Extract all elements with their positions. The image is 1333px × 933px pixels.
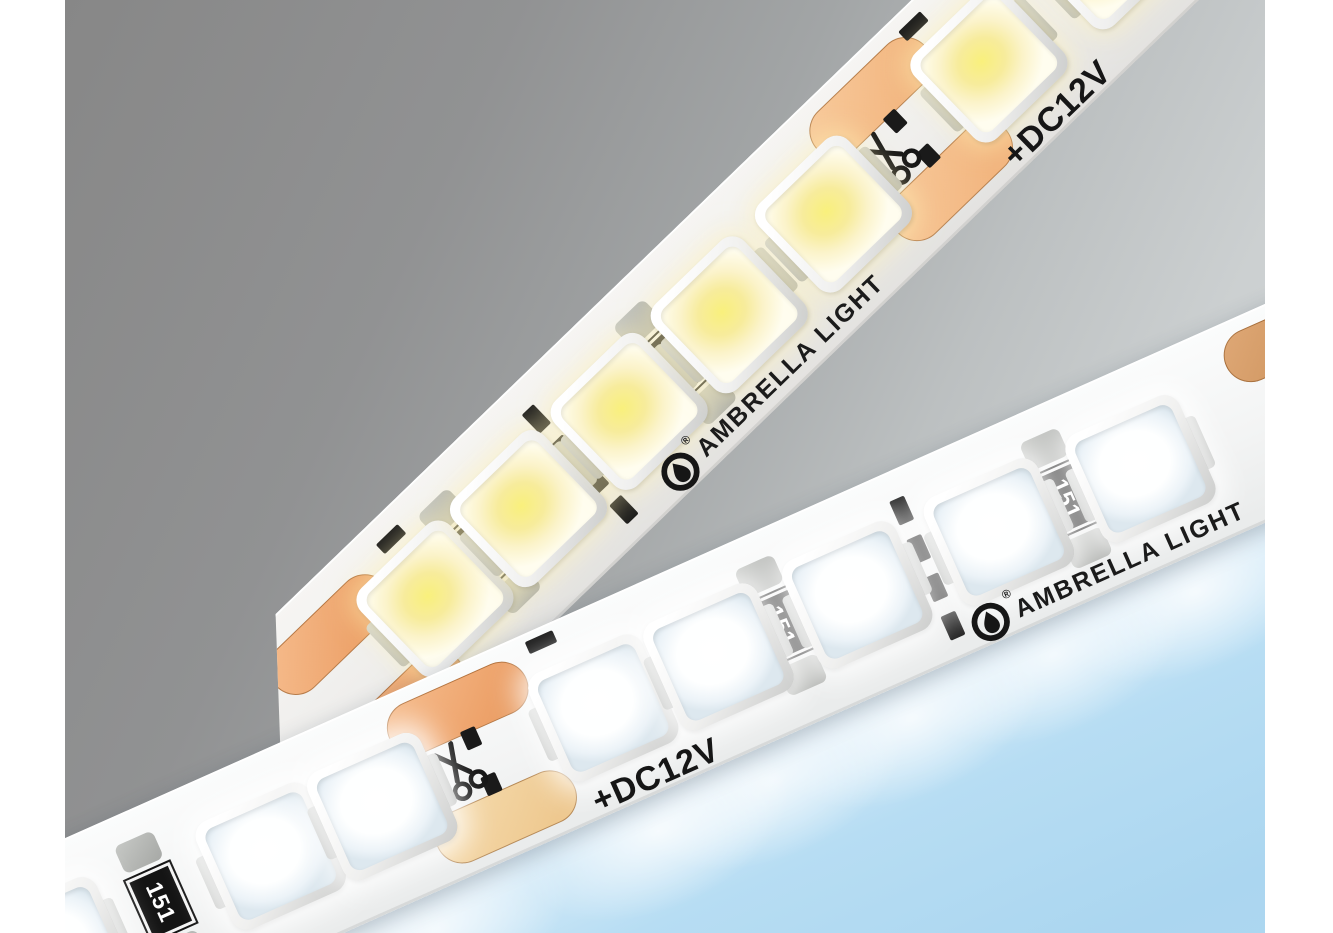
resistor-body: 151 xyxy=(125,862,196,933)
led-emitter xyxy=(1033,0,1179,24)
minus-polarity-mark xyxy=(898,11,929,41)
solder-pad xyxy=(1215,280,1265,390)
photo-background: 151 151 ® AMBRELLA LIGHT +DC12V xyxy=(65,0,1265,933)
solder-pad xyxy=(1263,389,1265,499)
minus-polarity-mark xyxy=(525,630,558,654)
product-photo: 151 151 ® AMBRELLA LIGHT +DC12V xyxy=(0,0,1333,933)
resistor-151: 151 xyxy=(111,829,211,933)
resistor-label: 151 xyxy=(140,877,181,926)
